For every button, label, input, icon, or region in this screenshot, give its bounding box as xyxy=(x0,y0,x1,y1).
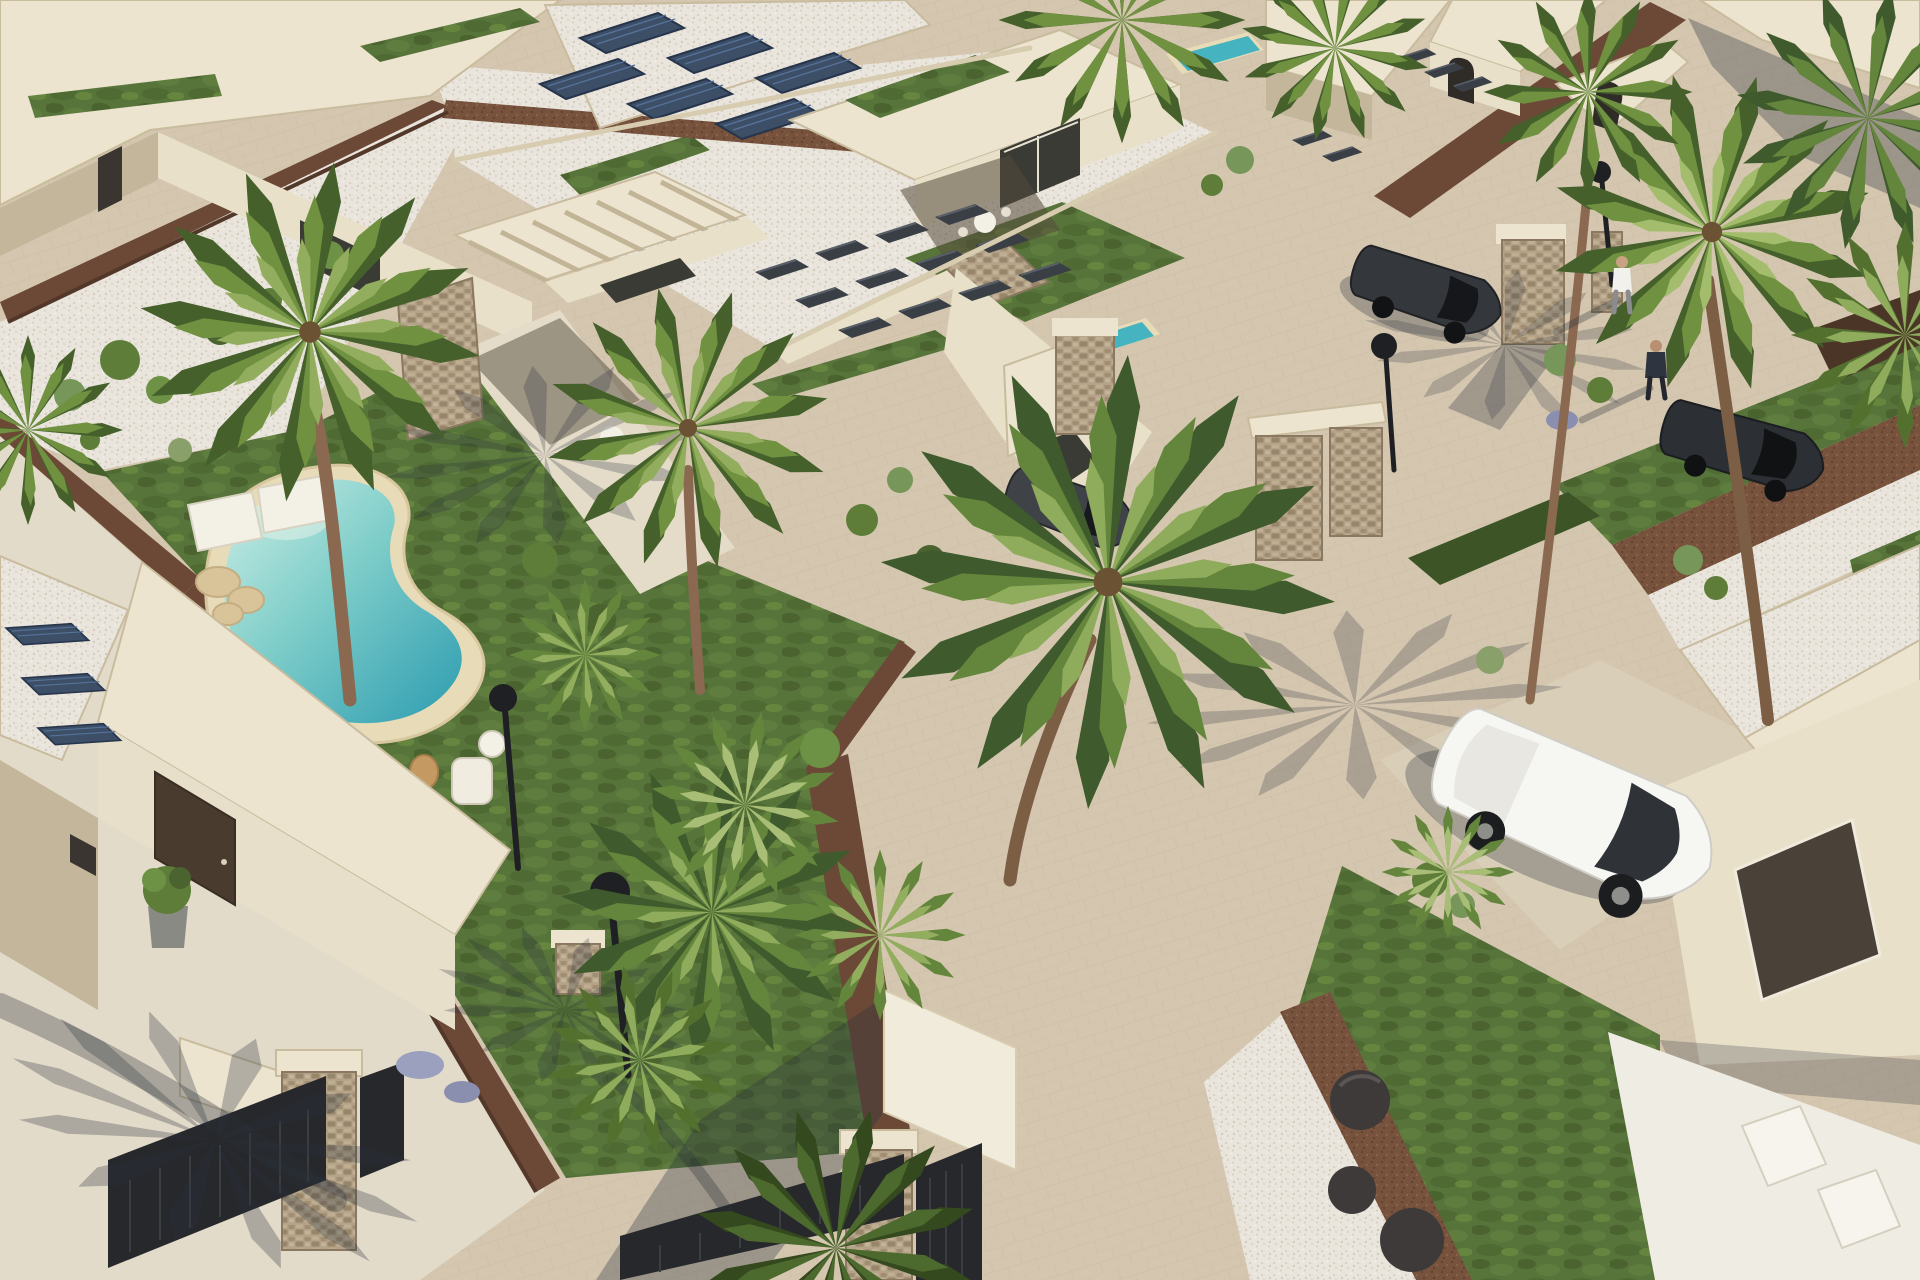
terrace-chair xyxy=(1001,207,1011,217)
stone-pillar xyxy=(1330,428,1382,536)
wicker-chair-white xyxy=(452,758,492,804)
aerial-render xyxy=(0,0,1920,1280)
door-handle xyxy=(221,859,227,865)
terrace-chair xyxy=(958,227,968,237)
scene-canvas xyxy=(0,0,1920,1280)
pillar-cap xyxy=(1052,318,1118,336)
side-table-white xyxy=(479,731,505,757)
